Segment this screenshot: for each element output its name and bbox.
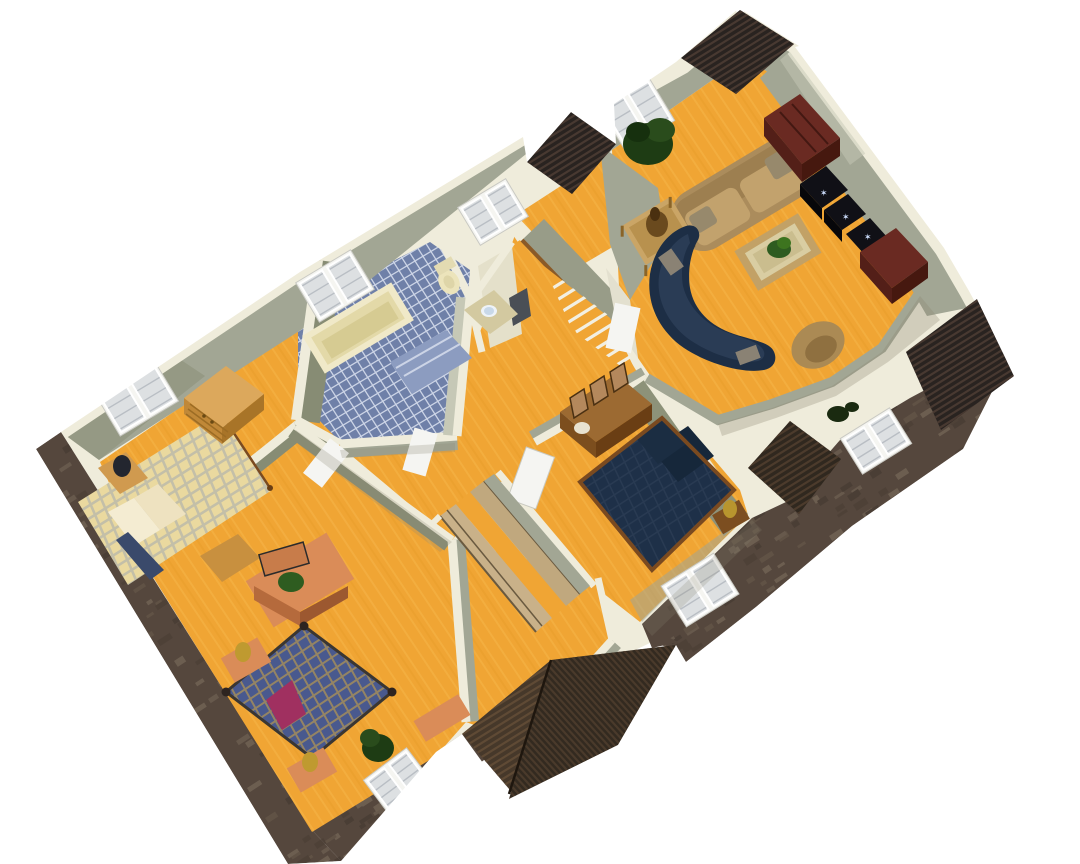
- svg-text:✶: ✶: [820, 188, 828, 198]
- svg-text:✶: ✶: [842, 212, 850, 222]
- svg-text:✶: ✶: [864, 232, 872, 242]
